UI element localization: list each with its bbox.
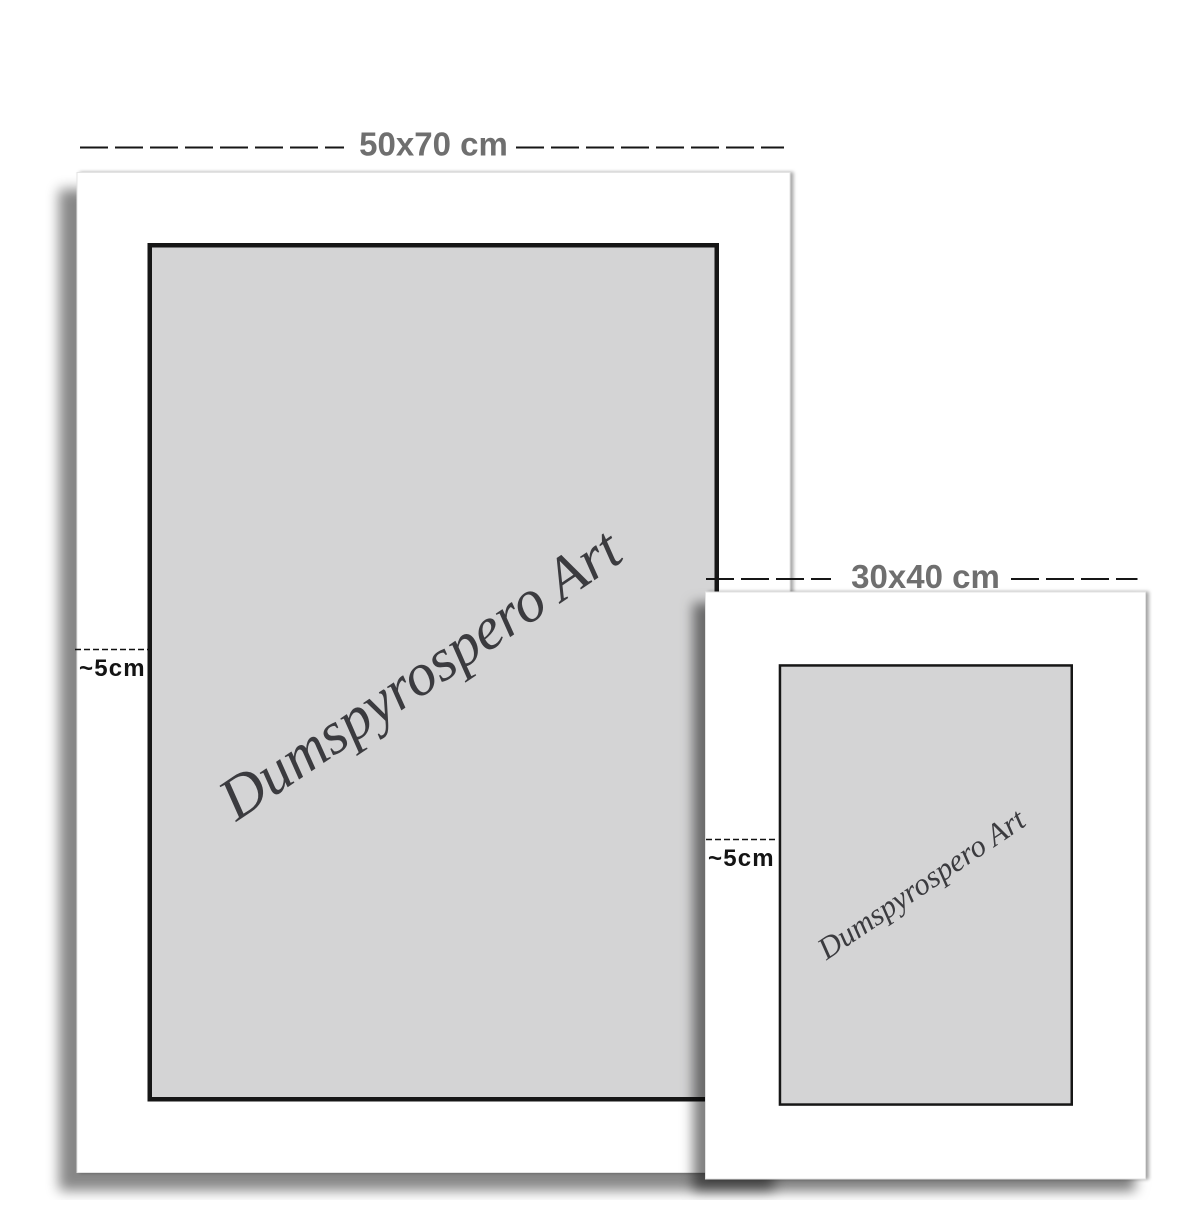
svg-text:~5cm: ~5cm: [708, 845, 775, 872]
svg-text:50x70 cm: 50x70 cm: [359, 126, 508, 163]
svg-text:~5cm: ~5cm: [79, 655, 146, 682]
svg-text:30x40 cm: 30x40 cm: [851, 558, 1000, 595]
